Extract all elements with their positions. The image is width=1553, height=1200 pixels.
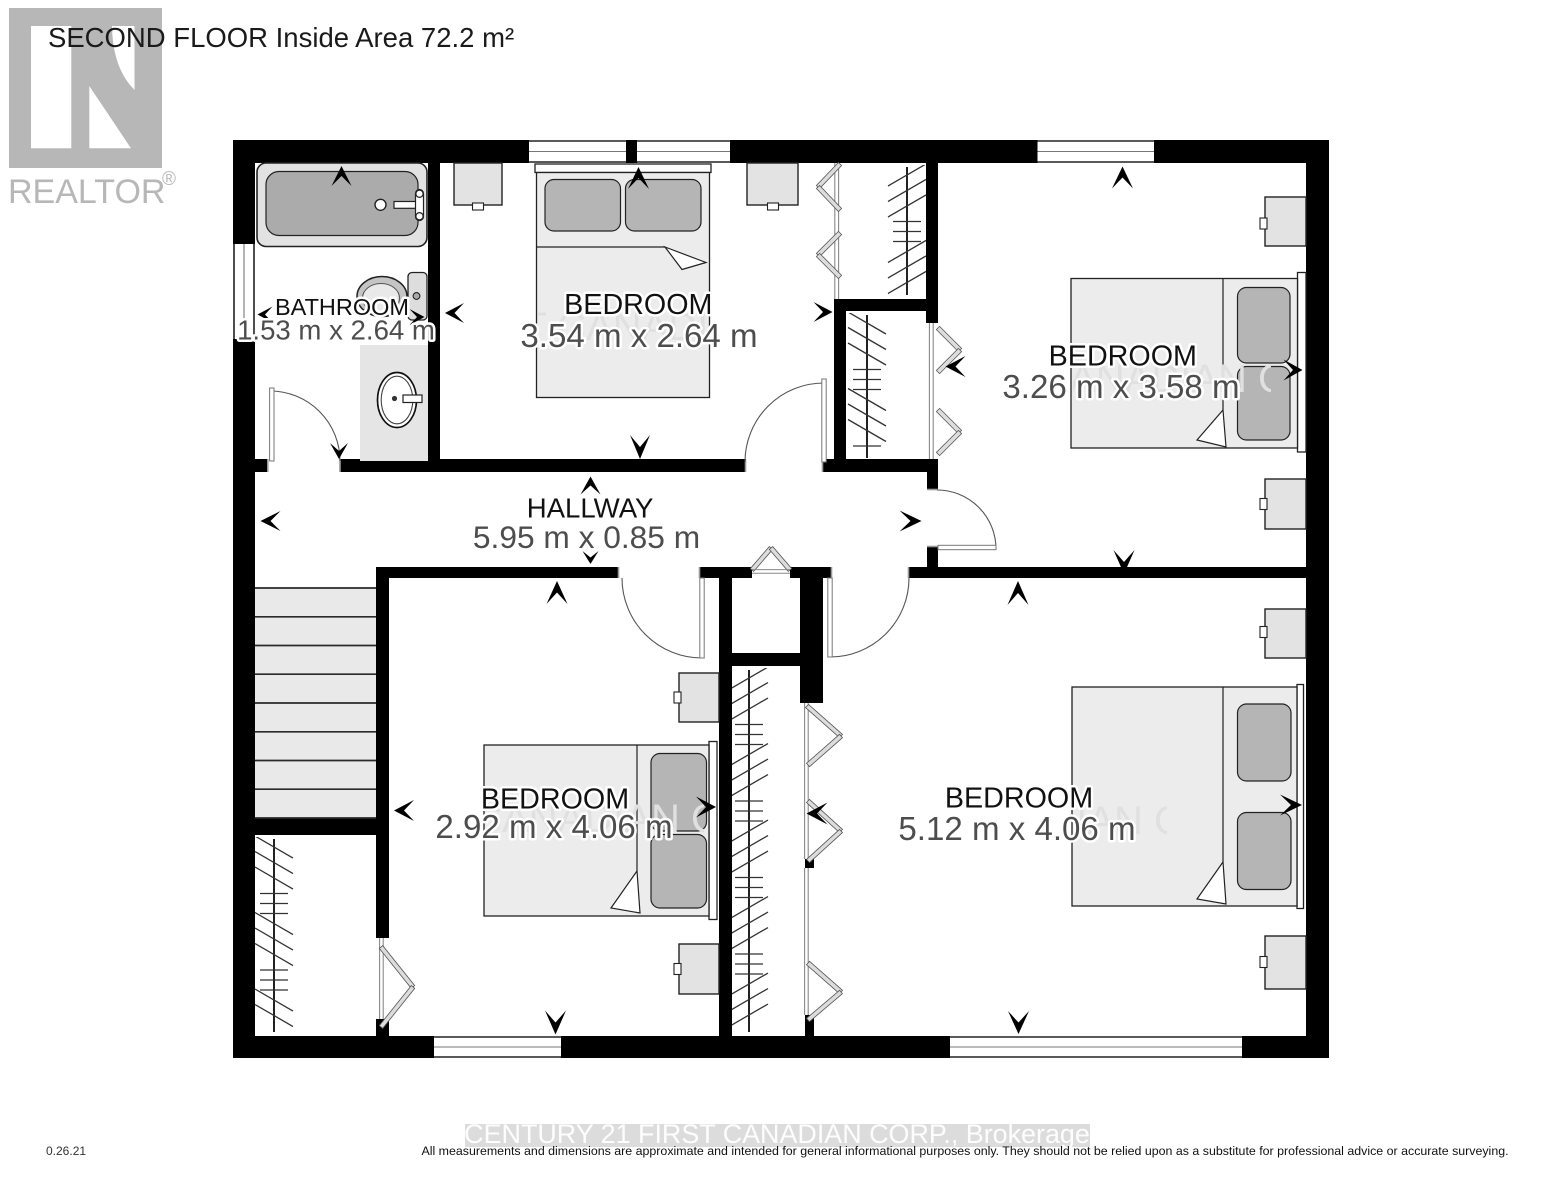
svg-text:REALTOR: REALTOR <box>8 173 165 211</box>
svg-text:All measurements and dimension: All measurements and dimensions are appr… <box>421 1144 1508 1158</box>
svg-text:SECOND FLOOR Inside Area 72.2: SECOND FLOOR Inside Area 72.2 m² <box>48 22 514 53</box>
svg-text:®: ® <box>162 169 176 190</box>
svg-text:3.54 m x 2.64 m: 3.54 m x 2.64 m <box>520 318 757 355</box>
svg-text:BEDROOM: BEDROOM <box>1049 340 1197 372</box>
svg-text:BEDROOM: BEDROOM <box>564 289 712 321</box>
svg-text:3.26 m x 3.58 m: 3.26 m x 3.58 m <box>1002 369 1239 406</box>
svg-text:5.95 m x 0.85 m: 5.95 m x 0.85 m <box>473 519 700 555</box>
svg-text:BEDROOM: BEDROOM <box>945 783 1093 815</box>
svg-text:5.12 m x 4.06 m: 5.12 m x 4.06 m <box>898 811 1135 848</box>
svg-text:2.92 m x 4.06 m: 2.92 m x 4.06 m <box>435 809 672 846</box>
svg-text:0.26.21: 0.26.21 <box>46 1144 86 1158</box>
svg-text:1.53 m x 2.64 m: 1.53 m x 2.64 m <box>237 315 435 346</box>
